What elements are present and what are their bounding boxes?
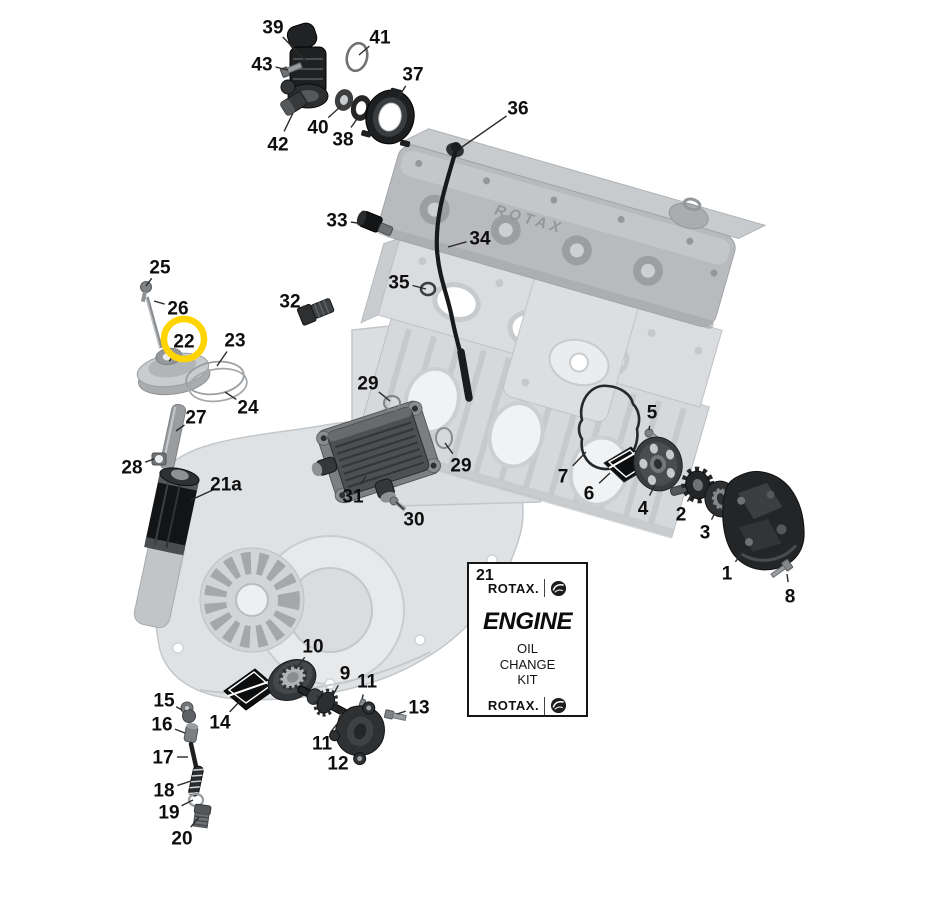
kit-title: ENGINE bbox=[469, 608, 586, 636]
divider bbox=[544, 579, 545, 597]
callout-label-10[interactable]: 10 bbox=[302, 637, 323, 658]
callout-label-29[interactable]: 29 bbox=[357, 374, 378, 395]
callout-label-43[interactable]: 43 bbox=[251, 55, 272, 76]
callout-label-30[interactable]: 30 bbox=[403, 510, 424, 531]
part-32-plug bbox=[297, 296, 335, 325]
part-28-nut bbox=[152, 453, 166, 465]
callout-label-9[interactable]: 9 bbox=[340, 664, 351, 685]
callout-label-12[interactable]: 12 bbox=[327, 754, 348, 775]
callout-19: 19 bbox=[158, 800, 193, 824]
callout-label-31[interactable]: 31 bbox=[342, 487, 364, 508]
oil-change-kit-box: 21 ROTAX. ENGINE OIL CHANGE KIT ROTAX. bbox=[467, 562, 588, 717]
callout-label-40[interactable]: 40 bbox=[307, 118, 328, 139]
callout-leader-line bbox=[362, 695, 363, 700]
callout-leader-line bbox=[397, 711, 406, 714]
callout-label-5[interactable]: 5 bbox=[647, 403, 658, 424]
callout-24: 24 bbox=[225, 392, 259, 419]
kit-subtitle: OIL CHANGE KIT bbox=[469, 641, 586, 688]
callout-label-27[interactable]: 27 bbox=[185, 408, 206, 429]
callout-label-11[interactable]: 11 bbox=[312, 734, 333, 755]
part-25-bolt bbox=[138, 280, 153, 302]
parts-diagram: ROTAX bbox=[0, 0, 947, 918]
callout-11: 11 bbox=[357, 672, 378, 700]
callout-label-39[interactable]: 39 bbox=[262, 18, 283, 39]
part-26-rod bbox=[147, 297, 161, 348]
callout-label-33[interactable]: 33 bbox=[326, 211, 347, 232]
callout-label-7[interactable]: 7 bbox=[558, 467, 569, 488]
callout-label-14[interactable]: 14 bbox=[209, 713, 231, 734]
callout-label-25[interactable]: 25 bbox=[149, 258, 171, 279]
kit-brand-row-bottom: ROTAX. bbox=[469, 696, 586, 716]
callout-leader-line bbox=[217, 352, 227, 367]
callout-42: 42 bbox=[267, 113, 293, 156]
callout-37: 37 bbox=[397, 65, 424, 101]
brp-logo-icon bbox=[550, 580, 567, 597]
callout-label-6[interactable]: 6 bbox=[584, 484, 595, 505]
callout-label-19[interactable]: 19 bbox=[158, 803, 179, 824]
kit-line-oil: OIL bbox=[469, 641, 586, 657]
callout-leader-line bbox=[787, 574, 788, 582]
callout-label-2[interactable]: 2 bbox=[676, 505, 687, 526]
callout-15: 15 bbox=[153, 691, 182, 712]
kit-part-number: 21 bbox=[476, 567, 494, 585]
callout-8: 8 bbox=[785, 574, 796, 608]
callout-label-24[interactable]: 24 bbox=[237, 398, 259, 419]
part-20-plug bbox=[192, 804, 211, 828]
callout-16: 16 bbox=[151, 715, 185, 736]
callout-label-42[interactable]: 42 bbox=[267, 135, 288, 156]
callout-label-23[interactable]: 23 bbox=[224, 331, 245, 352]
callout-label-38[interactable]: 38 bbox=[332, 130, 353, 151]
callout-3: 3 bbox=[700, 511, 716, 544]
callout-18: 18 bbox=[153, 781, 191, 802]
callout-label-35[interactable]: 35 bbox=[388, 273, 410, 294]
callout-label-16[interactable]: 16 bbox=[151, 715, 172, 736]
callout-label-21a[interactable]: 21a bbox=[210, 475, 242, 496]
part-41-oring bbox=[344, 41, 370, 73]
rotax-wordmark: ROTAX. bbox=[488, 581, 539, 596]
callout-leader-line bbox=[462, 116, 507, 147]
callout-leader-line bbox=[230, 700, 241, 712]
callout-label-32[interactable]: 32 bbox=[279, 292, 300, 313]
callout-label-17[interactable]: 17 bbox=[152, 748, 173, 769]
callout-36: 36 bbox=[462, 99, 529, 148]
brp-logo-icon bbox=[550, 697, 567, 714]
callout-17: 17 bbox=[152, 748, 188, 769]
callout-label-20[interactable]: 20 bbox=[171, 829, 192, 850]
part-15-fitting bbox=[181, 702, 196, 723]
callout-label-15[interactable]: 15 bbox=[153, 691, 175, 712]
callout-14: 14 bbox=[209, 700, 241, 734]
callout-25: 25 bbox=[146, 258, 171, 287]
callout-label-36[interactable]: 36 bbox=[507, 99, 528, 120]
callout-leader-line bbox=[328, 106, 341, 118]
callout-label-29[interactable]: 29 bbox=[450, 456, 471, 477]
part-39-pump-assembly bbox=[281, 21, 328, 108]
callout-label-11[interactable]: 11 bbox=[357, 672, 378, 693]
callout-label-41[interactable]: 41 bbox=[369, 28, 391, 49]
diagram-svg: ROTAX bbox=[0, 0, 947, 918]
rotax-wordmark: ROTAX. bbox=[488, 698, 539, 713]
callout-41: 41 bbox=[359, 28, 391, 56]
callout-label-4[interactable]: 4 bbox=[638, 499, 649, 520]
callout-28: 28 bbox=[121, 458, 154, 479]
callout-38: 38 bbox=[332, 116, 359, 151]
callout-label-37[interactable]: 37 bbox=[402, 65, 423, 86]
callout-leader-line bbox=[154, 301, 165, 304]
callout-label-1[interactable]: 1 bbox=[722, 564, 733, 585]
callout-label-28[interactable]: 28 bbox=[121, 458, 142, 479]
callout-23: 23 bbox=[217, 331, 246, 367]
callout-leader-line bbox=[177, 781, 191, 786]
part-34-handle bbox=[451, 142, 461, 152]
callout-label-34[interactable]: 34 bbox=[469, 229, 491, 250]
divider bbox=[544, 697, 545, 715]
callout-label-22[interactable]: 22 bbox=[173, 332, 194, 353]
callout-label-3[interactable]: 3 bbox=[700, 523, 711, 544]
callout-label-8[interactable]: 8 bbox=[785, 587, 796, 608]
callout-label-13[interactable]: 13 bbox=[408, 698, 429, 719]
part-16-plug bbox=[184, 722, 199, 743]
callout-leader-line bbox=[649, 426, 650, 430]
kit-line-change: CHANGE bbox=[469, 657, 586, 673]
part-26-rod-highlight bbox=[146, 297, 160, 348]
callout-leader-line bbox=[175, 729, 185, 733]
kit-line-kit: KIT bbox=[469, 672, 586, 688]
callout-label-18[interactable]: 18 bbox=[153, 781, 174, 802]
part-1-pump-housing bbox=[717, 466, 810, 575]
